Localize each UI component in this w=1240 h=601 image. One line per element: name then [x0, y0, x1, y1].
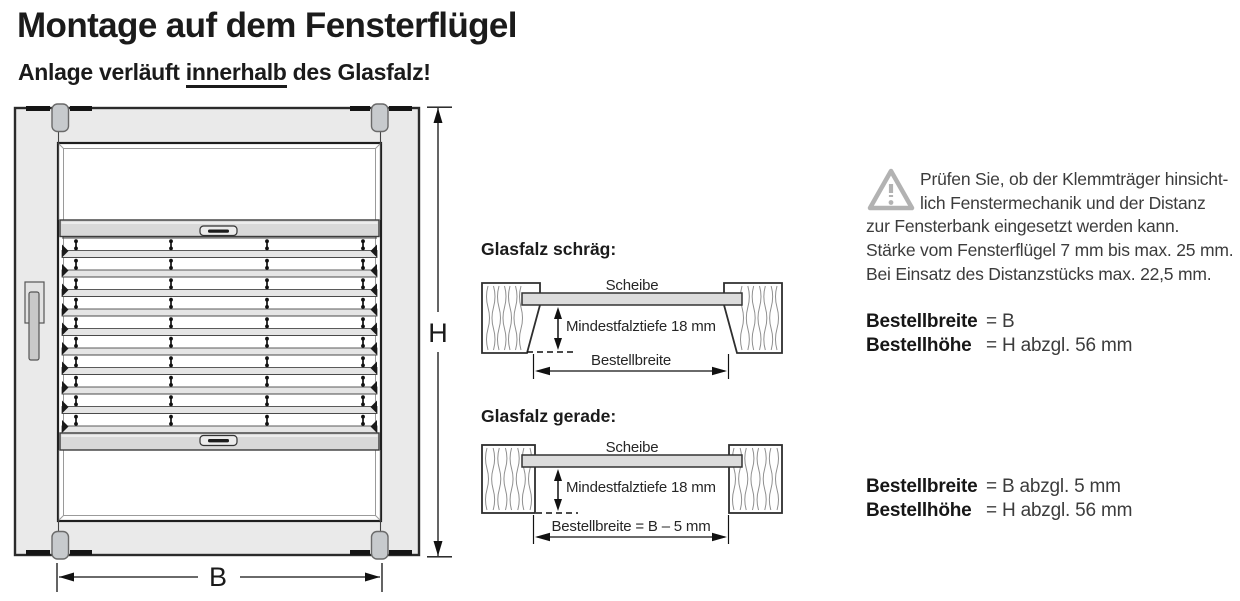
order-width-label-schraeg: Bestellbreite [591, 352, 671, 369]
depth-label-schraeg: Mindestfalztiefe 18 mm [566, 318, 716, 335]
order-height-label: Bestellhöhe [866, 500, 986, 522]
top-rail-handle-grip [208, 230, 229, 233]
page: Montage auf dem Fensterflügel Anlage ver… [0, 0, 1240, 601]
glass-pane-bar [522, 293, 742, 305]
height-dimension-label: H [428, 318, 448, 348]
order-width-value: = B [986, 311, 1014, 333]
subtitle-post: des Glasfalz! [287, 59, 431, 85]
depth-label-gerade: Mindestfalztiefe 18 mm [566, 479, 716, 496]
order-width-arrowhead-right [712, 533, 727, 541]
order-width-row: Bestellbreite = B [866, 311, 1132, 335]
order-width-value: = B abzgl. 5 mm [986, 476, 1121, 498]
shade-top-rail [60, 220, 379, 237]
width-arrowhead-left [59, 573, 74, 582]
pane-label-gerade: Scheibe [606, 439, 659, 456]
order-sizes-schraeg: Bestellbreite = B Bestellhöhe = H abzgl.… [866, 311, 1132, 359]
order-sizes-gerade: Bestellbreite = B abzgl. 5 mm Bestellhöh… [866, 476, 1132, 524]
notice-line: lich Fenstermechanik und der Distanz [866, 192, 1240, 216]
order-width-arrowhead-left [535, 533, 550, 541]
pane-label-schraeg: Scheibe [606, 277, 659, 294]
order-width-label: Bestellbreite [866, 476, 986, 498]
glasfalz-cross-sections: Scheibe Mindestfalztiefe 18 mm Bestellbr… [470, 230, 810, 560]
height-arrowhead-top [434, 108, 443, 123]
bottom-rail-handle-grip [208, 439, 229, 442]
notice-line: Stärke vom Fensterflügel 7 mm bis max. 2… [866, 239, 1240, 263]
depth-arrowhead-up [554, 307, 562, 319]
height-arrowhead-bottom [434, 541, 443, 556]
order-width-label-gerade: Bestellbreite = B – 5 mm [551, 518, 710, 535]
window-front-diagram: H B [0, 100, 460, 601]
clamp-bracket-bottom-right [372, 532, 389, 560]
depth-arrowhead-up [554, 469, 562, 481]
page-title: Montage auf dem Fensterflügel [17, 6, 517, 46]
order-height-row: Bestellhöhe = H abzgl. 56 mm [866, 335, 1132, 359]
page-subtitle: Anlage verläuft innerhalb des Glasfalz! [18, 59, 431, 86]
cross-section-gerade: Scheibe Mindestfalztiefe 18 mm Bestellbr… [482, 439, 782, 544]
order-width-label: Bestellbreite [866, 311, 986, 333]
order-height-value: = H abzgl. 56 mm [986, 500, 1132, 522]
clamp-bracket-top-right [372, 104, 389, 132]
subtitle-underlined: innerhalb [186, 59, 287, 88]
glass-pane-bar [522, 455, 742, 467]
cross-section-schraeg: Scheibe Mindestfalztiefe 18 mm Bestellbr… [482, 277, 782, 379]
notice-line: Prüfen Sie, ob der Klemmträger hinsicht- [866, 168, 1240, 192]
notice-text: Prüfen Sie, ob der Klemmträger hinsicht-… [866, 168, 1240, 287]
order-width-arrowhead-left [535, 367, 550, 375]
depth-arrowhead-down [554, 499, 562, 511]
notice-line: zur Fensterbank eingesetzt werden kann. [866, 215, 1240, 239]
clamp-bracket-bottom-left [52, 532, 69, 560]
clamp-bracket-top-left [52, 104, 69, 132]
notice-line: Bei Einsatz des Distanzstücks max. 22,5 … [866, 263, 1240, 287]
order-width-arrowhead-right [712, 367, 727, 375]
order-height-label: Bestellhöhe [866, 335, 986, 357]
depth-arrowhead-down [554, 338, 562, 350]
order-height-value: = H abzgl. 56 mm [986, 335, 1132, 357]
shade-bottom-rail [60, 433, 379, 450]
width-dimension-label: B [209, 562, 227, 592]
width-arrowhead-right [365, 573, 380, 582]
order-width-row: Bestellbreite = B abzgl. 5 mm [866, 476, 1132, 500]
order-height-row: Bestellhöhe = H abzgl. 56 mm [866, 500, 1132, 524]
subtitle-pre: Anlage verläuft [18, 59, 186, 85]
